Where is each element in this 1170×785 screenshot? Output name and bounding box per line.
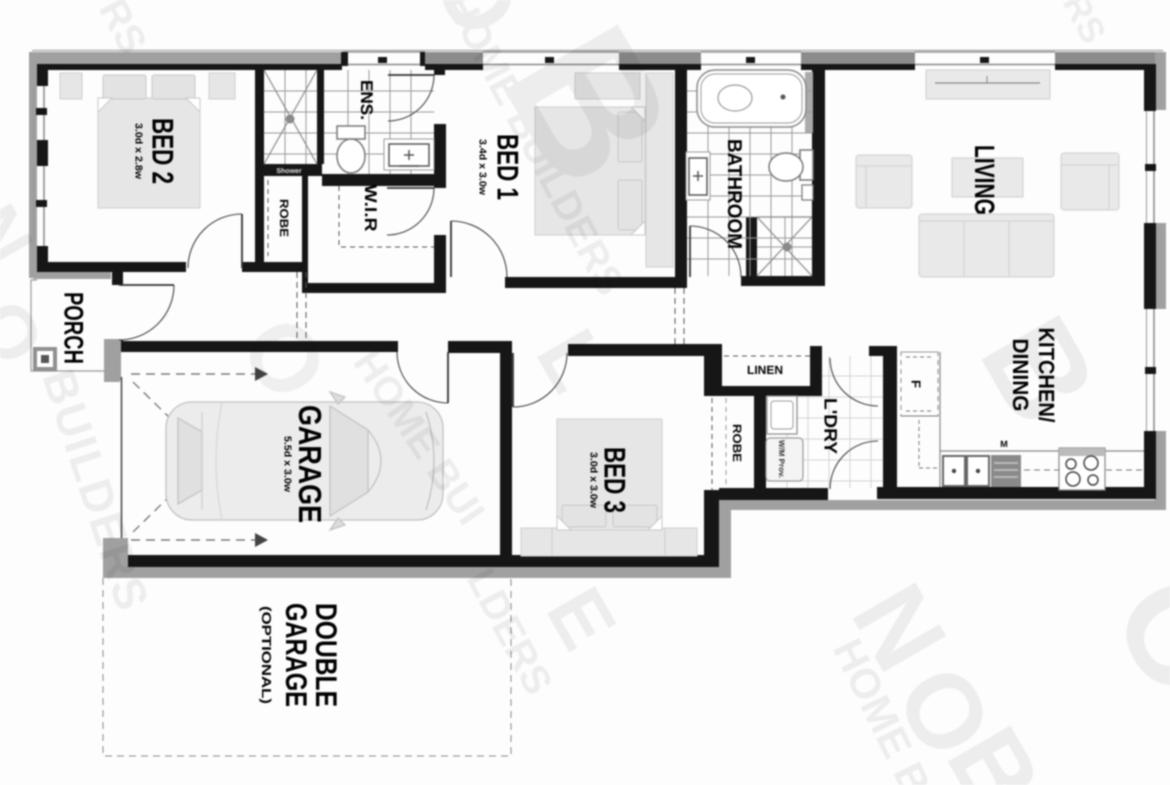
svg-text:PORCH: PORCH xyxy=(59,292,89,364)
svg-text:BED 3: BED 3 xyxy=(598,447,631,513)
svg-text:BED 2: BED 2 xyxy=(146,118,179,184)
svg-text:W/M Prov.: W/M Prov. xyxy=(777,440,786,478)
svg-text:3.0d x 2.8w: 3.0d x 2.8w xyxy=(133,123,144,179)
svg-text:5.5d x 3.0w: 5.5d x 3.0w xyxy=(282,436,293,492)
svg-text:DOUBLEGARAGE(OPTIONAL): DOUBLEGARAGE(OPTIONAL) xyxy=(259,603,342,707)
svg-text:3.4d x 3.0w: 3.4d x 3.0w xyxy=(477,139,488,195)
svg-text:BATHROOM: BATHROOM xyxy=(723,139,745,249)
svg-text:GARAGE: GARAGE xyxy=(292,405,328,523)
svg-text:F: F xyxy=(908,380,923,388)
svg-text:3.0d x 3.0w: 3.0d x 3.0w xyxy=(588,452,599,508)
svg-text:ROBE: ROBE xyxy=(730,424,744,462)
svg-text:Shower: Shower xyxy=(276,167,302,175)
svg-text:LINEN: LINEN xyxy=(747,363,783,377)
svg-text:W.I.R: W.I.R xyxy=(361,185,380,232)
svg-text:ENS.: ENS. xyxy=(357,80,376,120)
svg-text:LIVING: LIVING xyxy=(969,145,1000,215)
svg-text:ROBE: ROBE xyxy=(277,199,291,237)
svg-text:L'DRY: L'DRY xyxy=(821,398,841,454)
